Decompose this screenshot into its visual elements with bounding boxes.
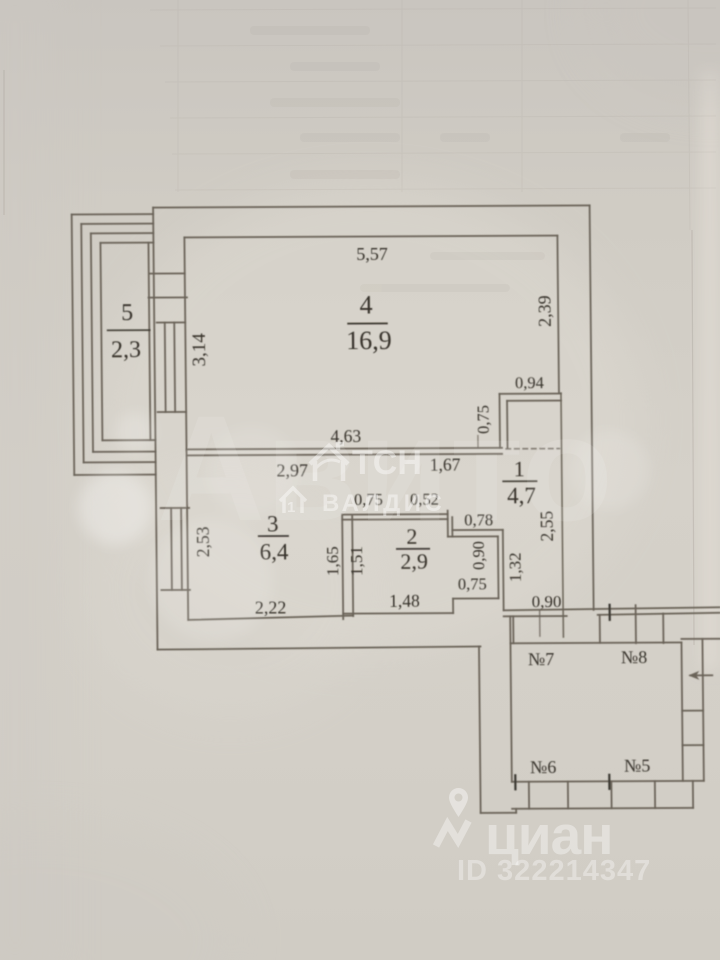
svg-text:5: 5 xyxy=(121,300,133,326)
svg-text:№5: №5 xyxy=(624,756,650,776)
svg-text:2,9: 2,9 xyxy=(400,549,428,574)
svg-text:1,32: 1,32 xyxy=(506,552,525,582)
svg-text:4: 4 xyxy=(359,290,372,319)
svg-text:2,39: 2,39 xyxy=(534,295,554,327)
svg-text:1: 1 xyxy=(287,499,295,516)
svg-text:5,57: 5,57 xyxy=(356,244,388,264)
svg-text:№6: №6 xyxy=(530,757,556,777)
svg-text:0,90: 0,90 xyxy=(532,592,562,611)
svg-text:ВАЛДИС: ВАЛДИС xyxy=(322,490,445,517)
svg-text:№8: №8 xyxy=(621,647,647,667)
svg-text:№7: №7 xyxy=(528,649,554,669)
svg-text:0,75: 0,75 xyxy=(458,574,487,593)
svg-text:16,9: 16,9 xyxy=(346,326,392,355)
svg-text:1,48: 1,48 xyxy=(389,591,420,611)
svg-text:2,3: 2,3 xyxy=(111,337,141,363)
svg-text:3,14: 3,14 xyxy=(189,333,210,367)
svg-text:ID 322214347: ID 322214347 xyxy=(457,855,651,887)
svg-text:ТСН: ТСН xyxy=(352,444,422,482)
